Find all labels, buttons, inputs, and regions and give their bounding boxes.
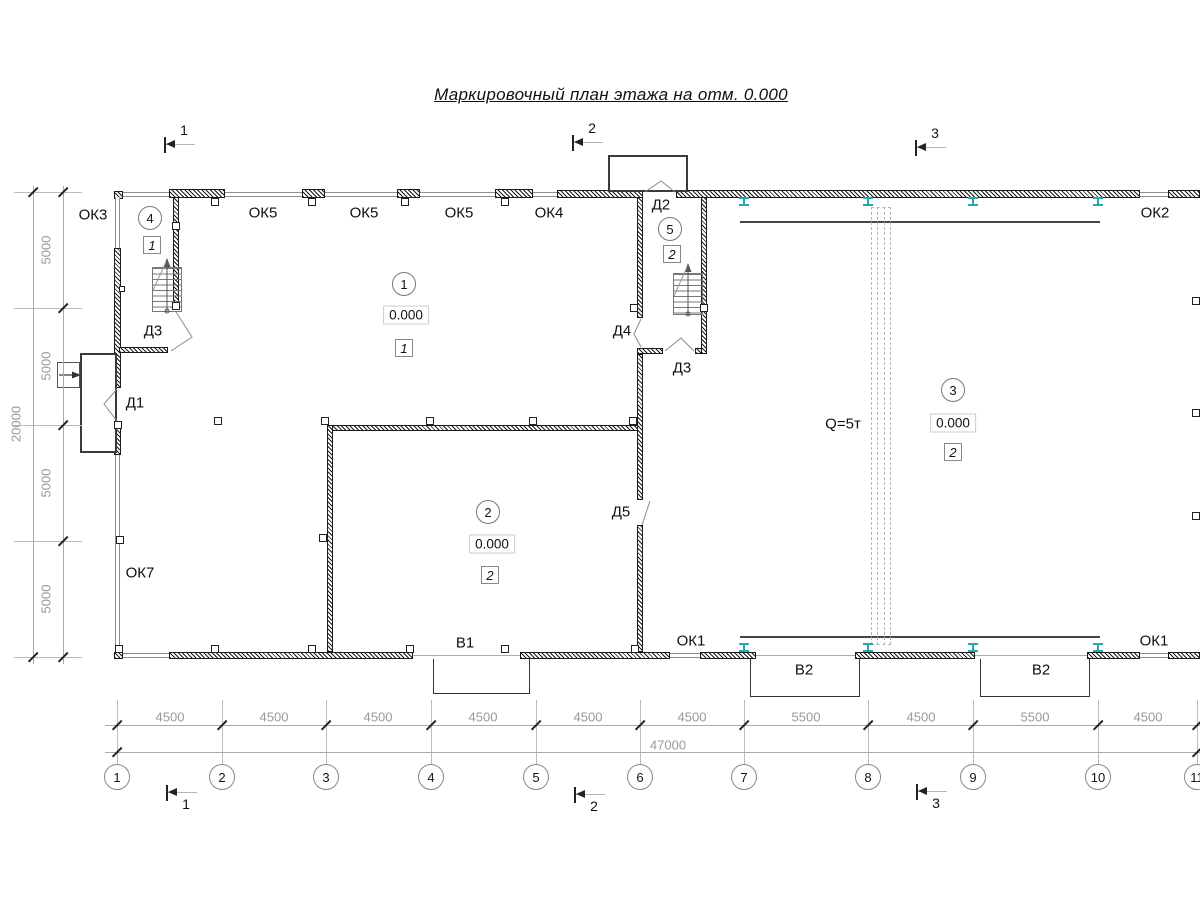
crane-capacity-label: Q=5т <box>825 416 861 433</box>
dimension-line <box>105 725 1200 726</box>
dimension-value: 5000 <box>39 585 54 614</box>
extension-line <box>536 700 537 764</box>
section-number: 2 <box>590 798 598 814</box>
extension-line <box>14 192 82 193</box>
dimension-value: 5000 <box>39 236 54 265</box>
column-marker <box>631 645 639 653</box>
steel-column-icon <box>1093 643 1103 652</box>
vestibule-outline <box>608 155 688 192</box>
window-label-ok5: ОК5 <box>249 205 278 222</box>
grid-bubble-1: 1 <box>104 764 130 790</box>
window-band-ok5 <box>420 192 495 197</box>
column-marker <box>115 645 123 653</box>
column-marker <box>630 304 638 312</box>
room-type-square: 2 <box>663 245 681 263</box>
window-label-ok1: ОК1 <box>677 633 706 650</box>
steel-column-icon <box>968 643 978 652</box>
gate-threshold <box>975 655 1087 656</box>
section-number: 1 <box>182 796 190 812</box>
grid-bubble-9: 9 <box>960 764 986 790</box>
room-type-square: 2 <box>944 443 962 461</box>
wall-pier <box>302 189 325 198</box>
gate-label-v2: В2 <box>1032 662 1050 679</box>
column-marker <box>119 286 125 292</box>
window-label-ok2: ОК2 <box>1141 205 1170 222</box>
stair-arrowhead-icon <box>164 258 171 267</box>
column-marker <box>211 645 219 653</box>
door-label-d1: Д1 <box>126 395 145 412</box>
wall-segment <box>169 652 413 659</box>
column-marker <box>116 536 124 544</box>
extension-line <box>14 425 82 426</box>
window-label-ok5: ОК5 <box>445 205 474 222</box>
column-marker <box>308 198 316 206</box>
wall-segment <box>114 652 123 659</box>
column-marker <box>214 417 222 425</box>
grid-bubble-6: 6 <box>627 764 653 790</box>
door-swing-d5 <box>642 501 650 525</box>
room-type-square: 2 <box>481 566 499 584</box>
room-number-circle: 5 <box>658 217 682 241</box>
section-marker-1-top <box>164 137 196 153</box>
section-number: 1 <box>180 122 188 138</box>
column-marker <box>629 417 637 425</box>
window-band-ok5 <box>225 192 302 197</box>
grid-bubble-8: 8 <box>855 764 881 790</box>
room-number-circle: 2 <box>476 500 500 524</box>
column-marker <box>401 198 409 206</box>
extension-line <box>117 700 118 764</box>
extension-line <box>1197 700 1198 764</box>
steel-column-icon <box>1093 197 1103 206</box>
wall-segment <box>855 652 975 659</box>
room2-partition <box>327 425 643 431</box>
column-marker <box>211 198 219 206</box>
section-marker-2-top <box>572 135 604 151</box>
entrance-step-outline <box>57 362 80 388</box>
crane-rail <box>740 636 1100 638</box>
extension-line <box>973 700 974 764</box>
section-number: 3 <box>932 795 940 811</box>
dividing-wall <box>637 354 643 500</box>
door-label-d4: Д4 <box>613 323 632 340</box>
gate-threshold <box>413 655 520 656</box>
elevation-mark: 0.000 <box>469 535 515 554</box>
steel-column-icon <box>863 643 873 652</box>
dimension-total: 20000 <box>9 406 24 442</box>
dimension-value: 5500 <box>1021 710 1050 725</box>
extension-line <box>326 700 327 764</box>
door-swing-d3a <box>171 312 192 351</box>
dimension-value: 4500 <box>469 710 498 725</box>
wall-segment <box>1087 652 1140 659</box>
steel-column-icon <box>739 197 749 206</box>
grid-bubble-11: 11 <box>1184 764 1200 790</box>
column-marker <box>426 417 434 425</box>
elevation-mark: 0.000 <box>930 414 976 433</box>
page-title: Маркировочный план этажа на отм. 0.000 <box>434 85 788 105</box>
gate-ramp-v1 <box>433 659 530 694</box>
room-type-square: 1 <box>395 339 413 357</box>
dimension-value: 4500 <box>678 710 707 725</box>
grid-bubble-3: 3 <box>313 764 339 790</box>
column-marker <box>319 534 327 542</box>
grid-bubble-10: 10 <box>1085 764 1111 790</box>
crane-rail <box>740 221 1100 223</box>
column-marker <box>172 222 180 230</box>
window-band <box>123 653 169 658</box>
extension-line <box>431 700 432 764</box>
window-band-ok5 <box>325 192 397 197</box>
window-band-ok1 <box>670 653 700 658</box>
crane-bridge-dashed <box>871 207 891 208</box>
door-swing-d4 <box>634 319 641 347</box>
dimension-value: 5000 <box>39 352 54 381</box>
dimension-value: 4500 <box>260 710 289 725</box>
steel-column-icon <box>739 643 749 652</box>
window-band-ok4 <box>533 192 557 197</box>
wall-segment <box>520 652 670 659</box>
extension-line <box>14 657 82 658</box>
dimension-line <box>33 186 34 664</box>
grid-bubble-7: 7 <box>731 764 757 790</box>
gate-threshold <box>756 655 855 656</box>
window-label-ok1: ОК1 <box>1140 633 1169 650</box>
column-marker <box>114 421 122 429</box>
gate-label-v2: В2 <box>795 662 813 679</box>
section-marker-3-top <box>915 140 947 156</box>
door-swing-d3b <box>665 338 694 351</box>
stair-flight <box>673 273 703 315</box>
extension-line <box>14 308 82 309</box>
stair-arrowhead-icon <box>685 263 692 272</box>
grid-bubble-4: 4 <box>418 764 444 790</box>
section-number: 2 <box>588 120 596 136</box>
stairwell4-wall <box>119 347 168 353</box>
window-band-ok2 <box>1140 192 1168 197</box>
extension-line <box>14 541 82 542</box>
column-marker <box>700 304 708 312</box>
door-label-d2: Д2 <box>652 197 671 214</box>
dimension-value: 4500 <box>364 710 393 725</box>
column-marker <box>1192 297 1200 305</box>
column-marker <box>321 417 329 425</box>
window-band-ok3 <box>115 197 120 248</box>
room-number-circle: 3 <box>941 378 965 402</box>
room-type-square: 1 <box>143 236 161 254</box>
dimension-value: 5500 <box>792 710 821 725</box>
gate-label-v1: В1 <box>456 635 474 652</box>
column-marker <box>308 645 316 653</box>
section-number: 3 <box>931 125 939 141</box>
dimension-value: 4500 <box>156 710 185 725</box>
wall-pier <box>397 189 420 198</box>
dimension-value: 4500 <box>907 710 936 725</box>
steel-column-icon <box>968 197 978 206</box>
crane-bridge-dashed <box>884 207 885 645</box>
window-band-ok7 <box>115 455 120 652</box>
crane-bridge-dashed <box>871 644 891 645</box>
crane-bridge-dashed <box>871 207 872 645</box>
column-marker <box>1192 512 1200 520</box>
steel-column-icon <box>863 197 873 206</box>
crane-bridge-dashed <box>877 207 878 645</box>
dividing-wall <box>637 197 643 318</box>
door-label-d5: Д5 <box>612 504 631 521</box>
room-number-circle: 1 <box>392 272 416 296</box>
column-marker <box>172 302 180 310</box>
entrance-porch-outline <box>80 353 117 453</box>
column-marker <box>406 645 414 653</box>
dimension-value: 4500 <box>574 710 603 725</box>
column-marker <box>501 198 509 206</box>
wall-segment <box>700 652 756 659</box>
dimension-total: 47000 <box>650 738 686 753</box>
door-label-d3: Д3 <box>144 323 163 340</box>
extension-line <box>868 700 869 764</box>
extension-line <box>744 700 745 764</box>
grid-bubble-5: 5 <box>523 764 549 790</box>
window-label-ok3: ОК3 <box>79 207 108 224</box>
window-label-ok7: ОК7 <box>126 565 155 582</box>
window-band-ok1 <box>1140 653 1168 658</box>
dividing-wall <box>637 525 643 652</box>
door-label-d3: Д3 <box>673 360 692 377</box>
extension-line <box>222 700 223 764</box>
dimension-value: 4500 <box>1134 710 1163 725</box>
window-label-ok4: ОК4 <box>535 205 564 222</box>
crane-bridge-dashed <box>890 207 891 645</box>
elevation-mark: 0.000 <box>383 306 429 325</box>
room-number-circle: 4 <box>138 206 162 230</box>
wall-segment <box>1168 652 1200 659</box>
extension-line <box>1098 700 1099 764</box>
extension-line <box>640 700 641 764</box>
room2-partition <box>327 425 333 652</box>
wall-segment <box>1168 190 1200 198</box>
column-marker <box>529 417 537 425</box>
wall-pier <box>495 189 533 198</box>
dimension-value: 5000 <box>39 469 54 498</box>
window-label-ok5: ОК5 <box>350 205 379 222</box>
column-marker <box>501 645 509 653</box>
column-marker <box>1192 409 1200 417</box>
grid-bubble-2: 2 <box>209 764 235 790</box>
floor-plan-drawing: Маркировочный план этажа на отм. 0.000 <box>0 0 1200 900</box>
window-band <box>123 192 169 197</box>
